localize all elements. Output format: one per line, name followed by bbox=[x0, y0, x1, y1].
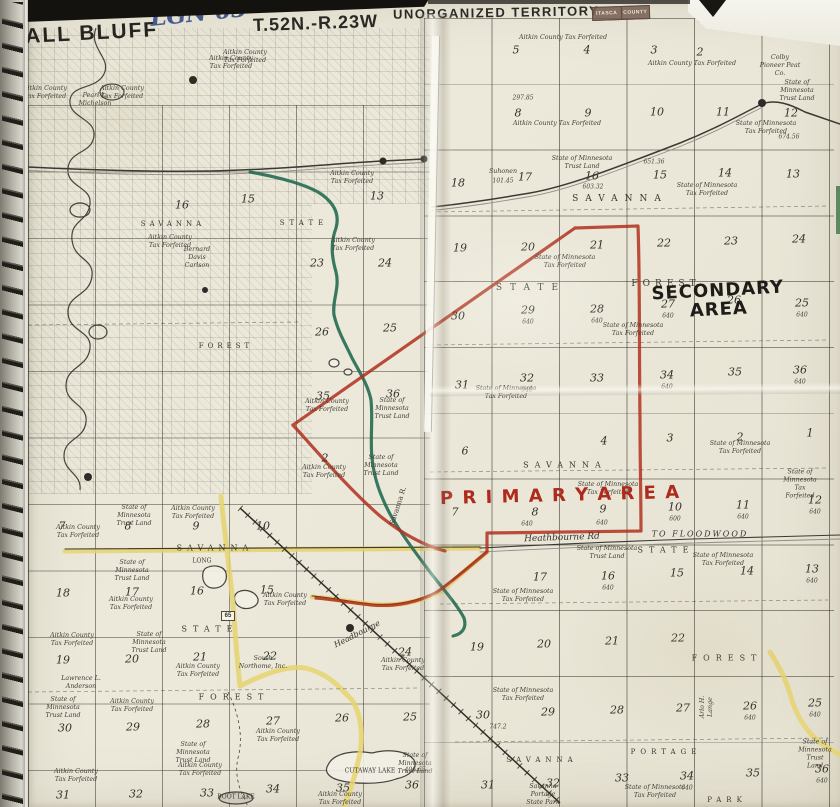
highlighted-roads-yellow bbox=[65, 496, 840, 807]
itasca-county-stamp: ITASCA COUNTY bbox=[592, 5, 650, 21]
plat-map-page: 5432891011121817161514131920212223243029… bbox=[0, 0, 840, 807]
photo-edge-top-thin bbox=[428, 0, 690, 4]
green-marker-route bbox=[250, 172, 465, 636]
floodwood-road bbox=[480, 535, 840, 548]
primary-area-sw-edge bbox=[293, 425, 445, 551]
stamp-text-2: COUNTY bbox=[621, 6, 649, 19]
township-label-left: T.52N.-R.23W bbox=[253, 11, 379, 36]
next-page-green-sliver bbox=[836, 186, 840, 234]
long-lake bbox=[203, 566, 227, 588]
water-features bbox=[64, 28, 415, 806]
cutaway-lake bbox=[326, 751, 415, 783]
main-road-east bbox=[432, 102, 840, 207]
page-edge-highlight bbox=[25, 0, 28, 807]
small-lake bbox=[235, 590, 259, 608]
spiral-coils bbox=[2, 2, 23, 805]
main-road-west-edge bbox=[28, 163, 424, 175]
primary-area-nw-edge bbox=[293, 228, 575, 425]
stamp-text-1: ITASCA bbox=[593, 7, 622, 20]
pond bbox=[329, 359, 339, 367]
river-path bbox=[64, 28, 106, 490]
river-trace-green bbox=[250, 172, 840, 636]
boot-lake bbox=[219, 792, 253, 804]
main-road-east-edge bbox=[432, 108, 762, 211]
secondary-area-annotation: SECONDARY AREA bbox=[651, 279, 785, 324]
creek-dashed bbox=[228, 692, 248, 806]
map-linework bbox=[0, 0, 840, 807]
portage-road-yellow bbox=[770, 652, 840, 755]
pond bbox=[344, 369, 352, 375]
south-branch-yellow bbox=[240, 667, 361, 807]
main-road-west bbox=[28, 159, 424, 171]
oxbow-lake bbox=[100, 84, 124, 100]
oxbow-lake bbox=[89, 325, 107, 339]
road-network bbox=[28, 102, 840, 604]
diagonal-road-yellow bbox=[312, 552, 487, 605]
highway-65-yellow bbox=[221, 496, 240, 686]
highway-65-marker: 65 bbox=[221, 611, 235, 621]
oxbow-lake bbox=[70, 203, 90, 217]
